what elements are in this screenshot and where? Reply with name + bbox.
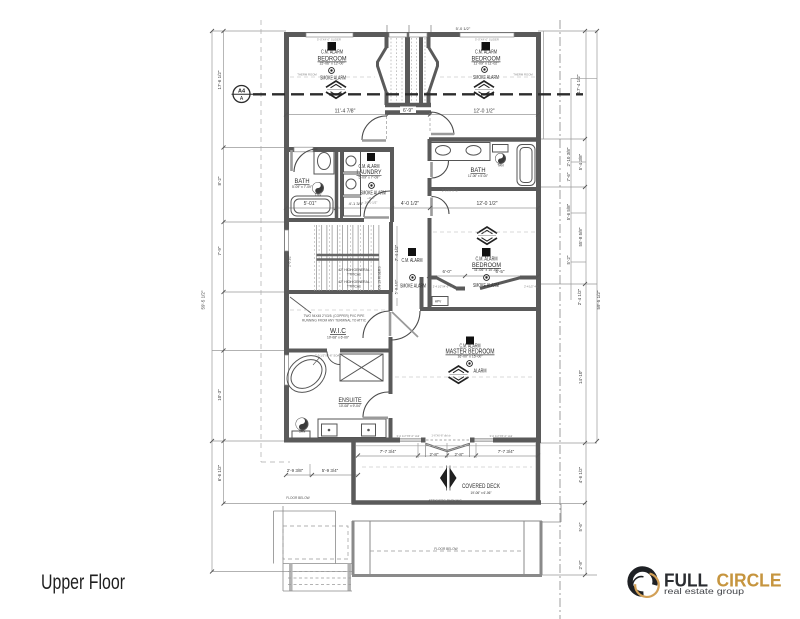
svg-text:4'-0 1/2": 4'-0 1/2"	[401, 201, 420, 207]
svg-text:7'-7 3/4": 7'-7 3/4"	[498, 449, 515, 454]
svg-text:DN 19 RISERS: DN 19 RISERS	[378, 266, 382, 290]
svg-text:4'-6 1/2": 4'-6 1/2"	[578, 466, 583, 483]
svg-text:6'-5": 6'-5"	[496, 269, 505, 274]
svg-text:TAN: TAN	[497, 164, 504, 168]
svg-text:6'-0": 6'-0"	[443, 269, 452, 274]
svg-text:6'-6 1/2": 6'-6 1/2"	[217, 464, 222, 481]
svg-text:12'-0 1/2": 12'-0 1/2"	[476, 201, 497, 207]
svg-text:7'-6": 7'-6"	[566, 172, 571, 181]
svg-text:5'-01": 5'-01"	[304, 201, 317, 207]
svg-text:5'-09" x 7'-09": 5'-09" x 7'-09"	[359, 176, 381, 180]
svg-text:5'-0 1/2": 5'-0 1/2"	[456, 26, 471, 31]
svg-text:7'-7 3/4": 7'-7 3/4"	[380, 449, 397, 454]
svg-text:TYPICAL: TYPICAL	[347, 273, 361, 277]
svg-text:Upper Floor: Upper Floor	[41, 571, 125, 594]
svg-text:FLOOR BELOW: FLOOR BELOW	[286, 496, 309, 500]
svg-text:12'-0 1/2": 12'-0 1/2"	[473, 109, 494, 115]
svg-text:2'-4 1/2" 4G: 2'-4 1/2" 4G	[524, 285, 538, 289]
svg-text:59'-5 1/2": 59'-5 1/2"	[201, 290, 206, 309]
svg-text:14'-10": 14'-10"	[578, 370, 583, 384]
svg-text:HPV: HPV	[435, 300, 442, 304]
svg-text:42" HIGH GENERAL: 42" HIGH GENERAL	[338, 268, 370, 272]
svg-text:2'-6"X6'-8" dr: 2'-6"X6'-8" dr	[442, 189, 458, 193]
svg-text:5'-09" x 7'-09": 5'-09" x 7'-09"	[292, 185, 313, 189]
svg-text:1'-6"X6'-8" dbl dr: 1'-6"X6'-8" dbl dr	[431, 434, 450, 438]
svg-text:C.M. ALARM: C.M. ALARM	[402, 258, 423, 264]
svg-text:2'-9 3/8": 2'-9 3/8"	[287, 468, 304, 473]
svg-text:17'-6 1/2": 17'-6 1/2"	[217, 70, 222, 89]
svg-text:6'-9": 6'-9"	[403, 108, 413, 114]
svg-text:2'-4 1/2"X4'-0" 4G: 2'-4 1/2"X4'-0" 4G	[433, 285, 454, 289]
svg-text:7'-4 1/2": 7'-4 1/2"	[394, 244, 399, 261]
svg-text:real estate group: real estate group	[664, 587, 745, 596]
svg-text:42" HIGH GENERAL: 42" HIGH GENERAL	[338, 280, 370, 284]
svg-text:11'-09" x 11'-02": 11'-09" x 11'-02"	[474, 62, 500, 66]
svg-text:+0'-6": +0'-6"	[367, 196, 375, 200]
svg-text:2'-4 1/2": 2'-4 1/2"	[577, 288, 582, 305]
svg-text:7'-9": 7'-9"	[217, 246, 222, 255]
svg-text:2'-8": 2'-8"	[430, 452, 439, 457]
svg-text:SMOKE ALARM: SMOKE ALARM	[473, 283, 499, 289]
svg-text:5'-0"X4'-0" SLIDER: 5'-0"X4'-0" SLIDER	[475, 38, 499, 42]
svg-text:3'-0 1/2"X5'-0" sldr: 3'-0 1/2"X5'-0" sldr	[490, 434, 513, 438]
svg-text:5'-0"X4'-0" SLIDER: 5'-0"X4'-0" SLIDER	[317, 38, 341, 42]
svg-text:11'-06" x 5'-00": 11'-06" x 5'-00"	[468, 174, 489, 178]
svg-text:15'-06" x 12'-00": 15'-06" x 12'-00"	[320, 62, 346, 66]
svg-text:10'-08" x 9'-04": 10'-08" x 9'-04"	[339, 403, 361, 408]
svg-text:THERM ROOM: THERM ROOM	[297, 73, 317, 77]
svg-text:4'-1 3/8": 4'-1 3/8"	[349, 201, 364, 206]
svg-text:17'-4 1/2": 17'-4 1/2"	[576, 74, 581, 93]
svg-text:5'-6 5/8": 5'-6 5/8"	[566, 203, 571, 220]
svg-text:2'-8": 2'-8"	[455, 452, 464, 457]
svg-text:2'-10 3/8": 2'-10 3/8"	[566, 147, 571, 166]
svg-text:2'-8": 2'-8"	[578, 560, 583, 569]
svg-text:55'-8 5/8": 55'-8 5/8"	[578, 227, 583, 246]
svg-text:3'-0 1/2"X5'-0" sldr: 3'-0 1/2"X5'-0" sldr	[397, 434, 420, 438]
svg-text:5'-9 3/4": 5'-9 3/4"	[322, 468, 339, 473]
svg-text:2'-6 1/2": 2'-6 1/2"	[288, 255, 292, 267]
svg-text:FLOOR BELOW: FLOOR BELOW	[434, 547, 457, 551]
svg-text:ALARM: ALARM	[474, 369, 487, 375]
svg-text:COVERED DECK: COVERED DECK	[462, 483, 500, 490]
svg-text:5'-8 1/2": 5'-8 1/2"	[394, 279, 399, 294]
svg-text:5'-2": 5'-2"	[566, 255, 571, 264]
svg-text:10'-3": 10'-3"	[217, 389, 222, 401]
svg-text:19'-06" x 6'-06": 19'-06" x 6'-06"	[471, 491, 493, 495]
svg-text:SAN: SAN	[299, 430, 306, 434]
svg-text:THV: THV	[315, 193, 323, 197]
svg-text:16'-00" x 15'-00": 16'-00" x 15'-00"	[458, 355, 484, 359]
svg-text:10'-08" x 6'-00": 10'-08" x 6'-00"	[327, 335, 349, 340]
svg-text:11'-4 7/8": 11'-4 7/8"	[335, 109, 356, 115]
svg-text:SMOKE ALARM: SMOKE ALARM	[320, 76, 346, 82]
svg-text:5'-4 3/8": 5'-4 3/8"	[578, 153, 583, 170]
svg-text:SMOKE ALARM: SMOKE ALARM	[400, 284, 426, 290]
svg-text:SMOKE ALARM: SMOKE ALARM	[473, 75, 499, 81]
svg-text:ATTIC/STG PARKING: ATTIC/STG PARKING	[428, 499, 462, 503]
svg-text:59'-5 1/2": 59'-5 1/2"	[596, 290, 601, 309]
svg-text:TYPICAL: TYPICAL	[347, 285, 361, 289]
svg-text:THERM ROOM: THERM ROOM	[513, 73, 533, 77]
svg-text:5'-6": 5'-6"	[578, 522, 583, 531]
svg-text:26'-0 1/2": 26'-0 1/2"	[365, 201, 378, 205]
svg-text:8'-2": 8'-2"	[217, 176, 222, 185]
svg-text:A4: A4	[238, 89, 246, 95]
svg-text:TWO 94X45 2"X3/5. (COPPER) PVC: TWO 94X45 2"X3/5. (COPPER) PVC PIPE	[304, 314, 365, 318]
svg-text:RUNNING FROM ANY TERMINAL TO A: RUNNING FROM ANY TERMINAL TO ATTIC	[302, 319, 367, 323]
